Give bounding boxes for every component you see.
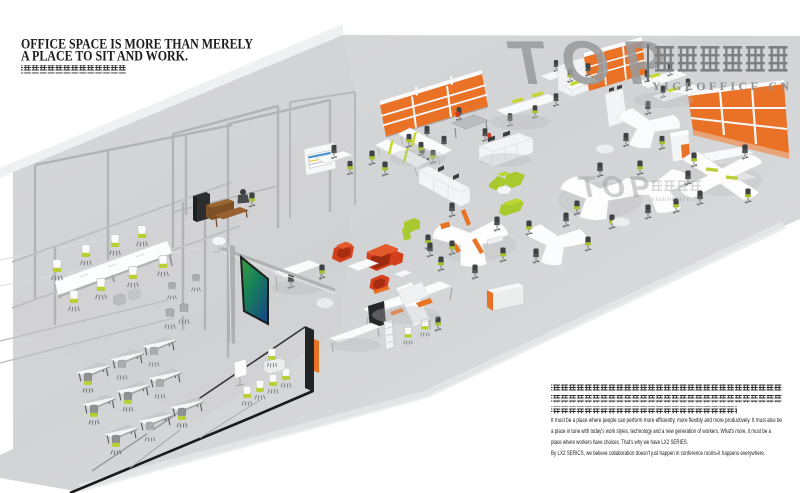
svg-text:TOP: TOP	[576, 171, 658, 204]
svg-text:A PLACE TO SIT AND WORK.: A PLACE TO SIT AND WORK.	[21, 49, 188, 65]
svg-text:It must be a place where peopl: It must be a place where people can perf…	[551, 417, 782, 424]
svg-text:YIGEOFFICE.CN: YIGEOFFICE.CN	[651, 198, 701, 203]
svg-text:place where workers have choic: place where workers have choices. That's…	[551, 439, 688, 446]
svg-text:a place in tune with today's w: a place in tune with today's work styles…	[551, 428, 771, 435]
svg-text:By LX2 SERICS, we believe coll: By LX2 SERICS, we believe collaboration …	[551, 450, 765, 457]
svg-text:YIGEOFFICE.CN: YIGEOFFICE.CN	[652, 79, 789, 93]
